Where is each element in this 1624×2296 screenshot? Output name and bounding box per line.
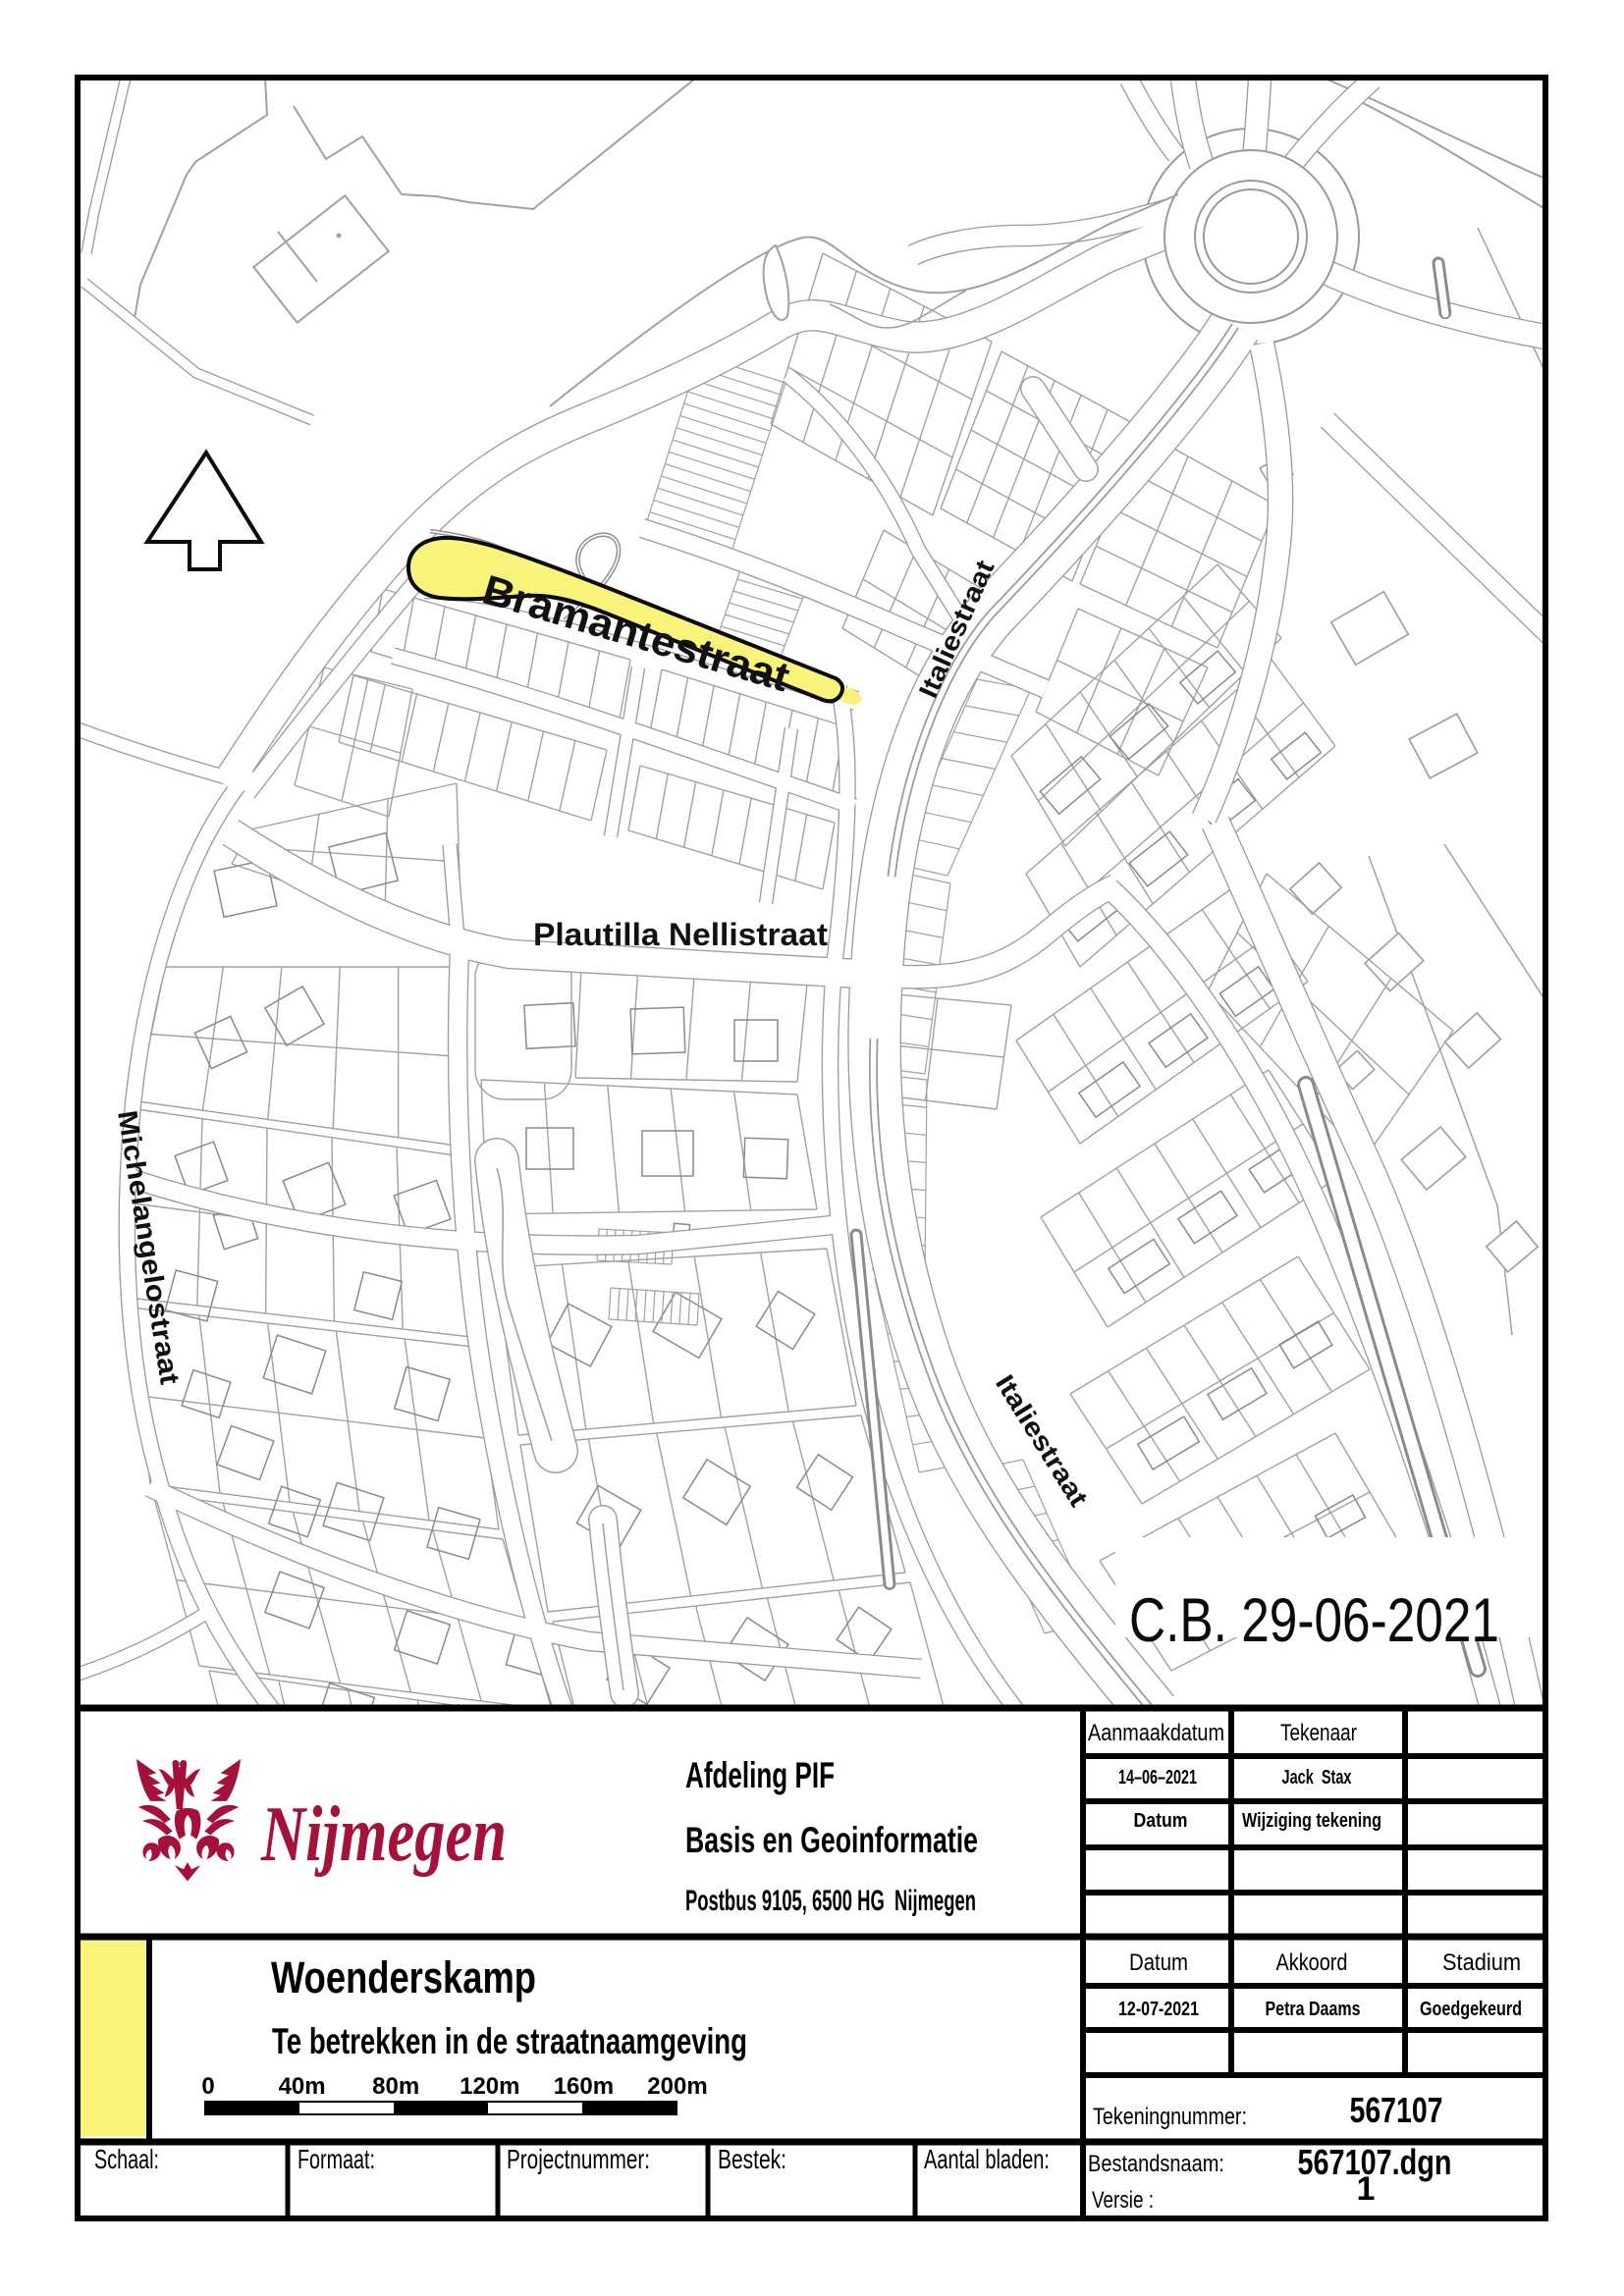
svg-text:80m: 80m [372,2073,419,2100]
svg-text:Formaat:: Formaat: [298,2144,375,2174]
svg-text:0: 0 [201,2073,214,2100]
svg-text:1: 1 [1357,2170,1376,2208]
svg-text:Nijmegen: Nijmegen [260,1791,507,1878]
svg-text:Akkoord: Akkoord [1276,1949,1348,1976]
svg-text:Goedgekeurd: Goedgekeurd [1420,1999,1522,2020]
svg-text:Petra Daams: Petra Daams [1266,1999,1361,2020]
svg-text:Aantal bladen:: Aantal bladen: [924,2144,1050,2174]
svg-text:Projectnummer:: Projectnummer: [507,2144,650,2174]
svg-text:40m: 40m [279,2073,326,2100]
svg-text:Bestandsnaam:: Bestandsnaam: [1088,2151,1224,2177]
svg-text:Basis en Geoinformatie: Basis en Geoinformatie [685,1820,978,1860]
svg-text:160m: 160m [554,2073,614,2100]
svg-text:Tekenaar: Tekenaar [1280,1720,1357,1746]
svg-text:Postbus 9105, 6500 HG Nijmege: Postbus 9105, 6500 HG Nijmegen [685,1885,976,1917]
svg-text:Tekeningnummer:: Tekeningnummer: [1093,2104,1247,2130]
svg-text:Jack Stax: Jack Stax [1282,1767,1352,1789]
svg-text:120m: 120m [460,2073,519,2100]
svg-text:Woenderskamp: Woenderskamp [271,1952,536,2002]
svg-text:Plautilla Nellistraat: Plautilla Nellistraat [533,917,828,952]
svg-text:14–06–2021: 14–06–2021 [1118,1767,1197,1789]
svg-text:567107: 567107 [1350,2090,1443,2130]
svg-text:Wijziging tekening: Wijziging tekening [1242,1810,1381,1832]
svg-text:C.B. 29-06-2021: C.B. 29-06-2021 [1129,1586,1499,1655]
svg-text:Datum: Datum [1129,1949,1188,1976]
svg-text:Versie :: Versie : [1092,2187,1154,2214]
svg-text:Stadium: Stadium [1442,1949,1521,1976]
svg-text:Datum: Datum [1134,1810,1188,1832]
svg-text:Aanmaakdatum: Aanmaakdatum [1088,1720,1224,1746]
svg-text:12-07-2021: 12-07-2021 [1118,1999,1199,2020]
svg-text:Bestek:: Bestek: [718,2144,786,2174]
svg-text:Schaal:: Schaal: [94,2144,159,2174]
svg-text:200m: 200m [647,2073,707,2100]
svg-text:Afdeling PIF: Afdeling PIF [685,1755,835,1795]
svg-text:Te betrekken in de straatnaamg: Te betrekken in de straatnaamgeving [272,2021,747,2061]
